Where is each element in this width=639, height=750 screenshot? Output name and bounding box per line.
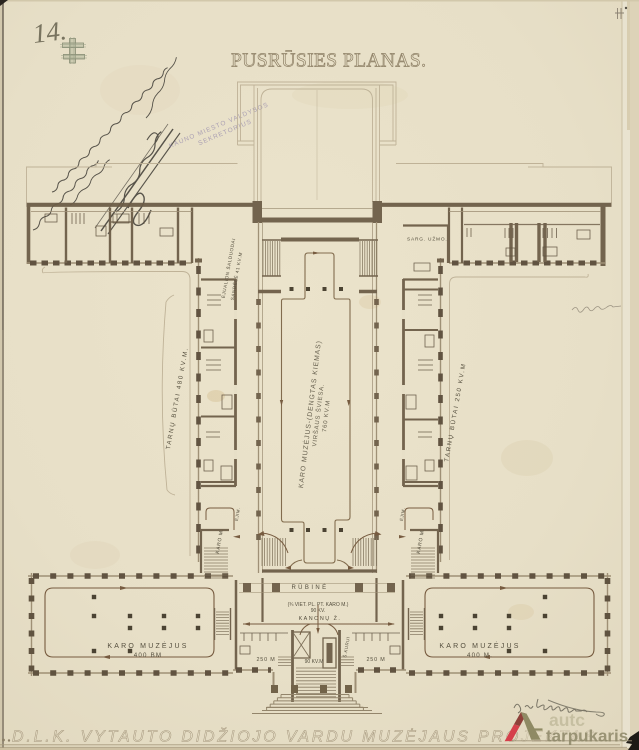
svg-text:RŪBINĖ: RŪBINĖ xyxy=(291,584,328,591)
svg-text:90 KV.M: 90 KV.M xyxy=(305,659,324,665)
svg-text:D.L.K. VYTAUTO DIDŽIOJO VARDU: D.L.K. VYTAUTO DIDŽIOJO VARDU MUZĖJAUS P… xyxy=(12,727,521,746)
svg-text:KANONŲ Ž.: KANONŲ Ž. xyxy=(299,614,342,622)
svg-text:KARO MUZĖJUS: KARO MUZĖJUS xyxy=(439,641,520,650)
svg-text:PUSRŪSIES PLANAS.: PUSRŪSIES PLANAS. xyxy=(231,51,426,72)
svg-text:400 M.: 400 M. xyxy=(467,652,493,659)
svg-text:250 M: 250 M xyxy=(257,657,276,663)
svg-text:250 M: 250 M xyxy=(367,657,386,663)
svg-text:tarpukaris: tarpukaris xyxy=(546,727,628,746)
svg-text:400 BM: 400 BM xyxy=(134,652,163,659)
svg-text:KARO MUZĖJUS: KARO MUZĖJUS xyxy=(107,641,188,650)
